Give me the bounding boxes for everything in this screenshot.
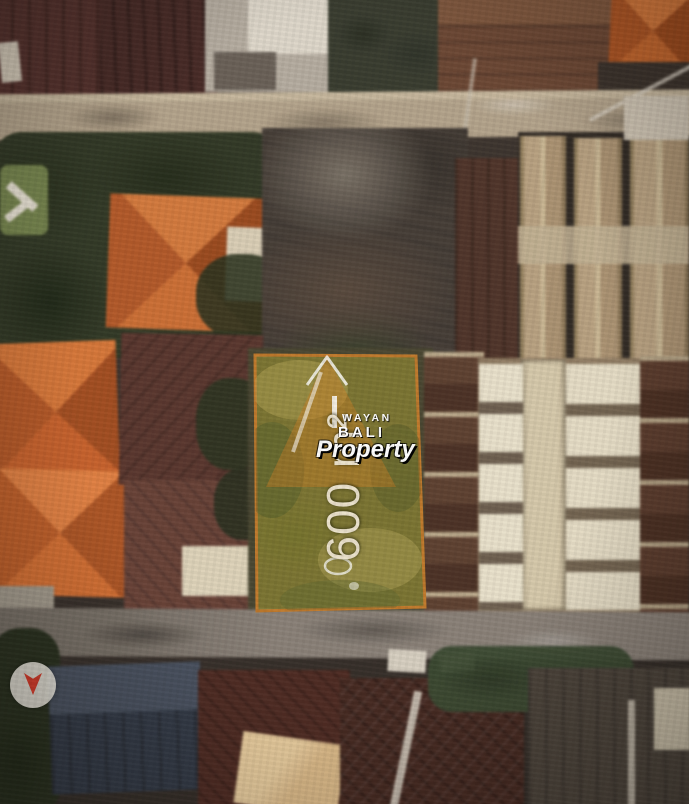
watermark: WAYAN BALI Property bbox=[280, 408, 470, 468]
location-marker bbox=[10, 662, 56, 708]
location-arrow-icon bbox=[24, 673, 42, 695]
satellite-map-view: 600 m² WAYAN BALI Property bbox=[0, 0, 689, 804]
watermark-line-wayan: WAYAN bbox=[342, 412, 392, 424]
watermark-line-property: Property bbox=[316, 436, 415, 464]
